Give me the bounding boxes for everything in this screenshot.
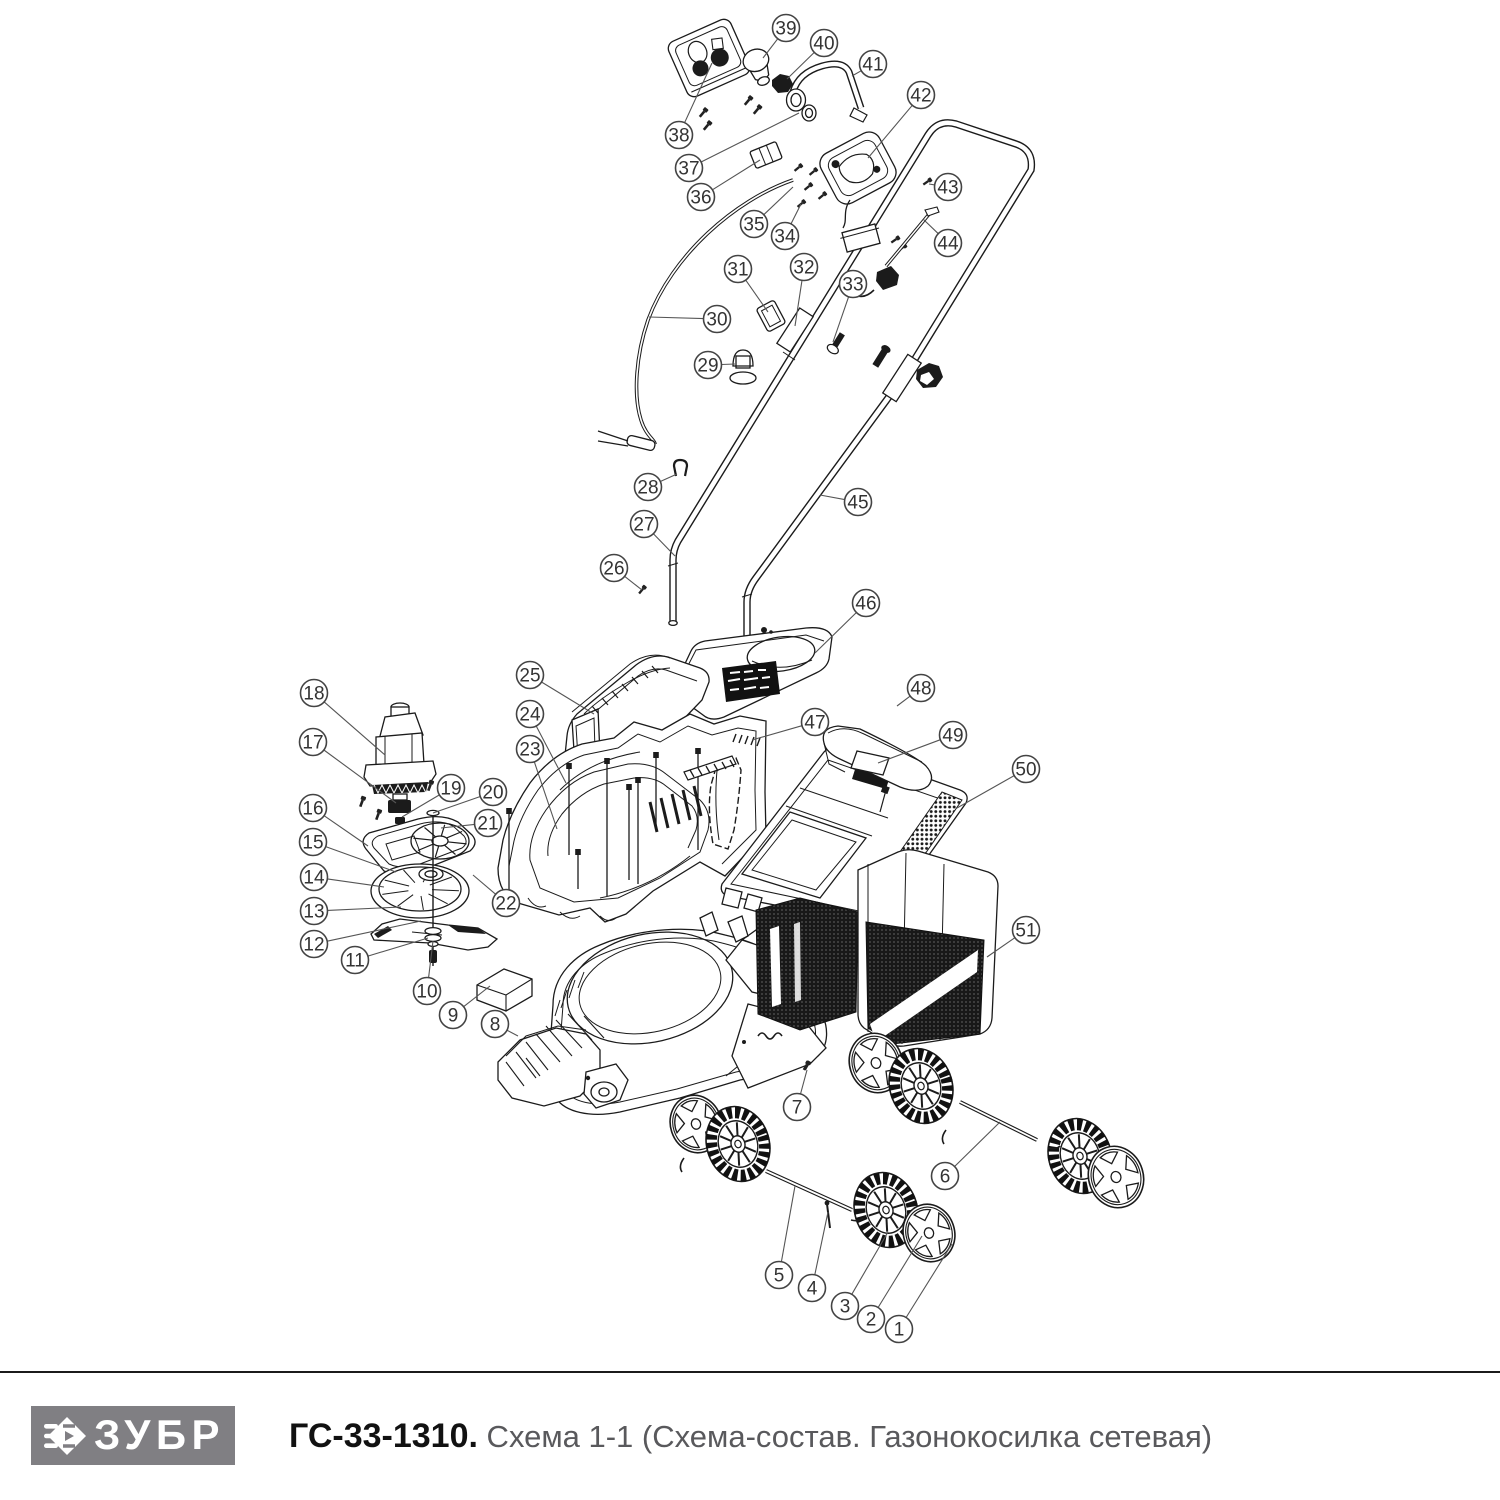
svg-text:16: 16 xyxy=(302,799,323,820)
svg-text:35: 35 xyxy=(743,215,764,236)
svg-text:3: 3 xyxy=(840,1297,851,1318)
svg-text:24: 24 xyxy=(519,705,541,726)
svg-text:27: 27 xyxy=(633,515,654,536)
svg-text:34: 34 xyxy=(774,227,796,248)
svg-text:43: 43 xyxy=(937,178,958,199)
svg-text:4: 4 xyxy=(807,1279,818,1300)
svg-text:13: 13 xyxy=(303,902,324,923)
svg-text:29: 29 xyxy=(697,356,718,377)
svg-text:38: 38 xyxy=(668,126,689,147)
svg-text:40: 40 xyxy=(813,34,834,55)
svg-text:6: 6 xyxy=(940,1167,951,1188)
svg-text:45: 45 xyxy=(847,493,868,514)
svg-text:50: 50 xyxy=(1015,760,1036,781)
svg-text:26: 26 xyxy=(603,559,624,580)
svg-text:39: 39 xyxy=(775,19,796,40)
svg-text:ЗУБР: ЗУБР xyxy=(94,1411,225,1458)
svg-text:48: 48 xyxy=(910,679,931,700)
svg-text:12: 12 xyxy=(303,935,324,956)
svg-text:33: 33 xyxy=(842,275,863,296)
svg-text:46: 46 xyxy=(855,594,876,615)
svg-text:37: 37 xyxy=(678,159,699,180)
svg-text:44: 44 xyxy=(937,234,959,255)
svg-text:9: 9 xyxy=(448,1006,459,1027)
svg-text:42: 42 xyxy=(910,86,931,107)
svg-text:18: 18 xyxy=(303,684,324,705)
svg-text:21: 21 xyxy=(477,814,498,835)
svg-text:41: 41 xyxy=(862,55,883,76)
svg-text:36: 36 xyxy=(690,188,711,209)
svg-text:19: 19 xyxy=(440,779,461,800)
svg-text:28: 28 xyxy=(637,478,658,499)
svg-text:2: 2 xyxy=(866,1310,877,1331)
svg-text:14: 14 xyxy=(303,868,325,889)
svg-text:23: 23 xyxy=(519,740,540,761)
svg-text:32: 32 xyxy=(793,258,814,279)
svg-text:31: 31 xyxy=(727,260,748,281)
svg-text:15: 15 xyxy=(302,833,323,854)
svg-text:30: 30 xyxy=(706,310,727,331)
svg-text:8: 8 xyxy=(490,1015,501,1036)
svg-text:47: 47 xyxy=(804,713,825,734)
svg-text:7: 7 xyxy=(792,1098,803,1119)
svg-text:ГС-33-1310. Схема 1-1 (Схема-с: ГС-33-1310. Схема 1-1 (Схема-состав. Газ… xyxy=(289,1417,1212,1455)
svg-text:10: 10 xyxy=(416,982,437,1003)
svg-text:20: 20 xyxy=(482,783,503,804)
svg-text:25: 25 xyxy=(519,666,540,687)
svg-text:49: 49 xyxy=(942,726,963,747)
svg-text:22: 22 xyxy=(495,894,516,915)
svg-text:17: 17 xyxy=(302,733,323,754)
svg-text:1: 1 xyxy=(894,1320,905,1341)
svg-text:11: 11 xyxy=(345,951,365,972)
svg-text:5: 5 xyxy=(774,1266,785,1287)
svg-text:51: 51 xyxy=(1015,921,1036,942)
